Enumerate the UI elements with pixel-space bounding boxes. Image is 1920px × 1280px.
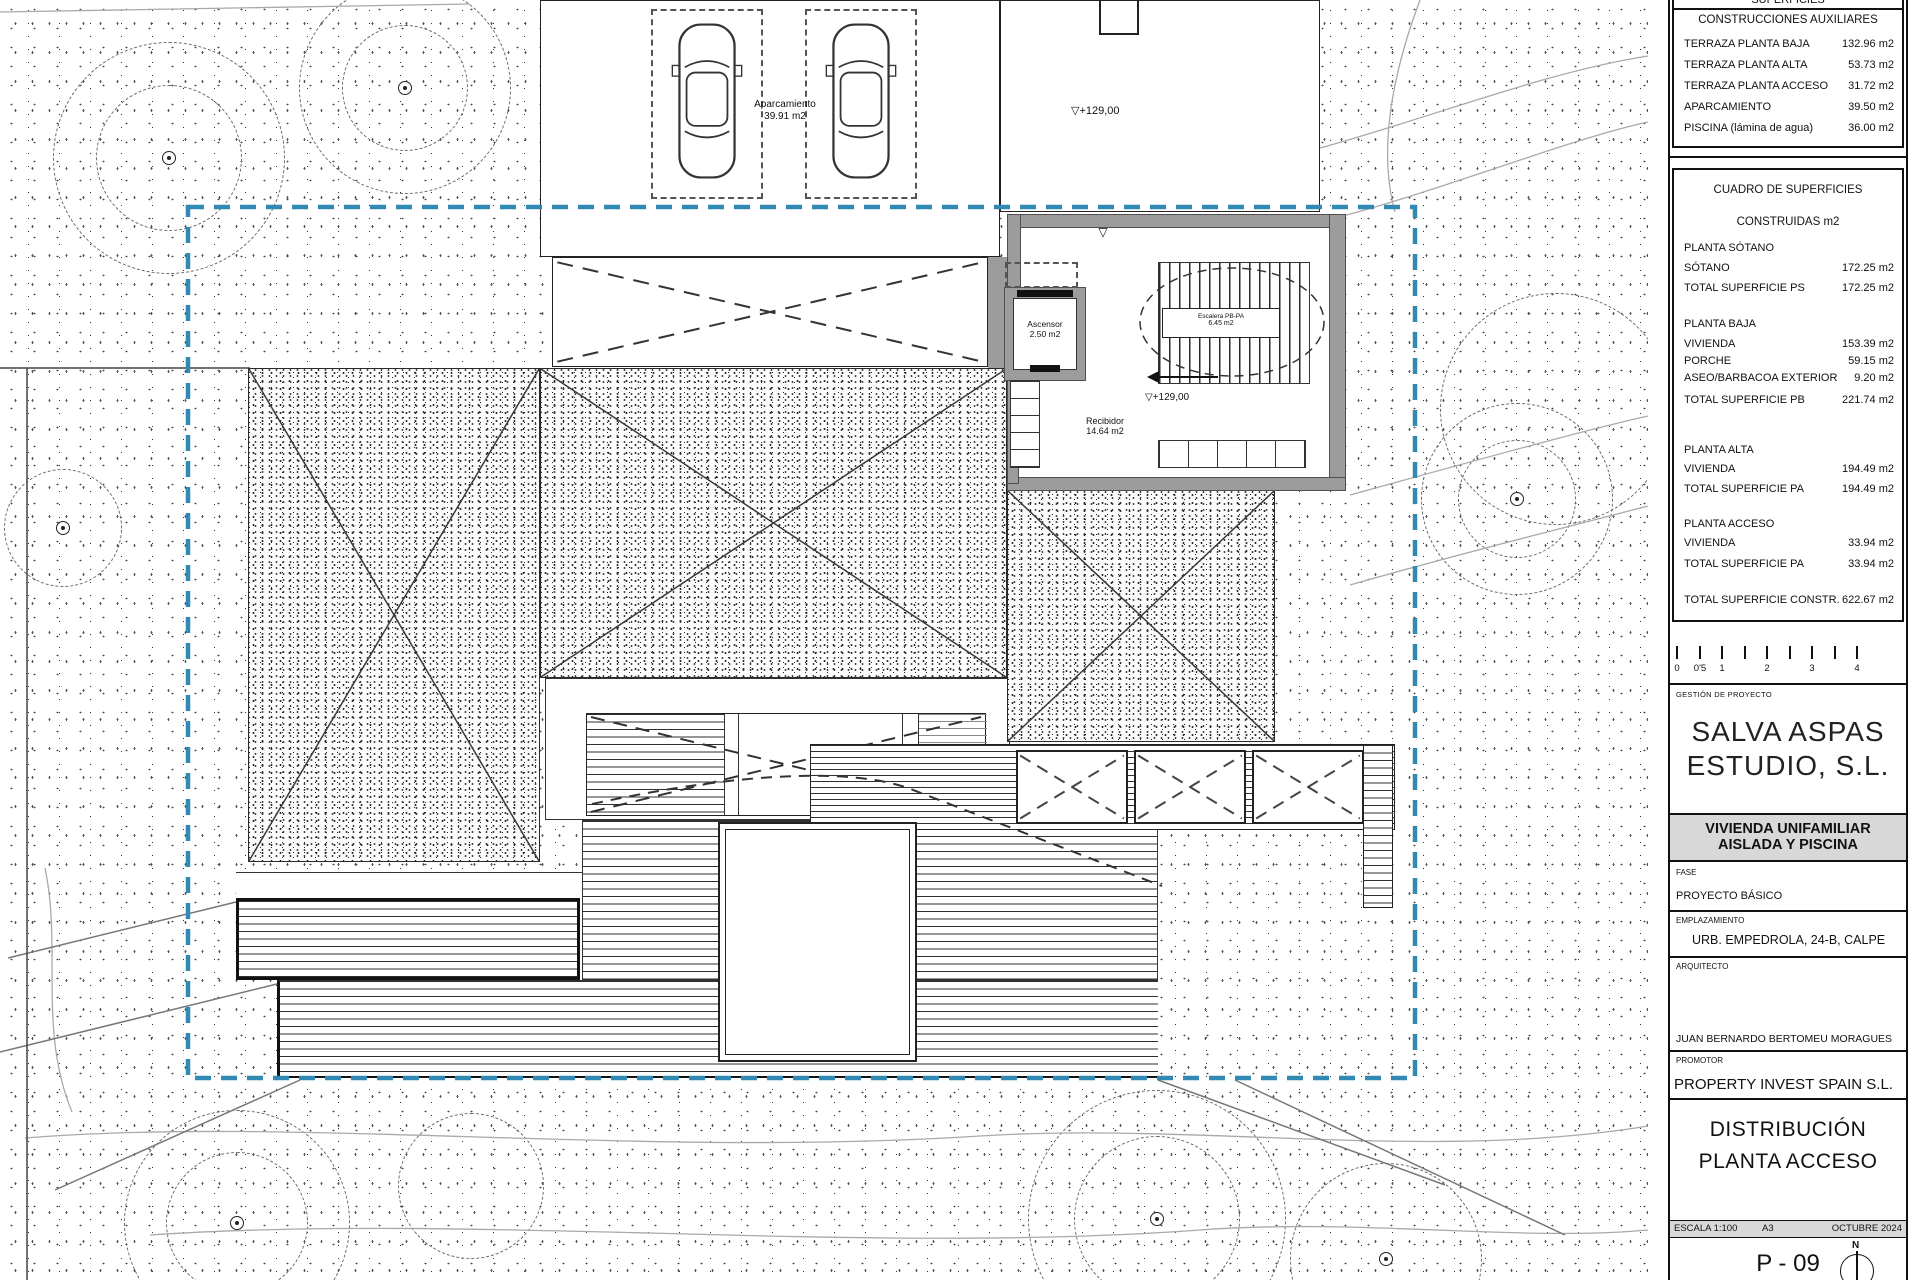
- arquitecto-label: ARQUITECTO: [1676, 962, 1728, 971]
- row-label: VIVIENDA: [1684, 537, 1735, 549]
- exterior-stair: [1363, 744, 1393, 908]
- sheet-title1: DISTRIBUCIÓN: [1672, 1118, 1904, 1142]
- floor-plan-block: Ascensor2.50 m2 Escalera PB-PA 6.45 m2 ▽…: [1005, 210, 1350, 492]
- plan-level-label: ▽+129,00: [1145, 392, 1235, 404]
- gestion-label: GESTIÓN DE PROYECTO: [1676, 690, 1772, 699]
- aux-row-label: TERRAZA PLANTA BAJA: [1684, 38, 1810, 50]
- recibidor-label: Recibidor14.64 m2: [1065, 416, 1145, 437]
- upper-structure: [1099, 0, 1139, 35]
- group-heading: PLANTA ALTA: [1684, 444, 1754, 456]
- fase-label: FASE: [1676, 868, 1696, 877]
- arquitecto-value: JUAN BERNARDO BERTOMEU MORAGUES: [1676, 1033, 1892, 1045]
- group-heading: PLANTA ACCESO: [1684, 518, 1774, 530]
- row-value: 221.74 m2: [1842, 394, 1894, 406]
- row-label: SÓTANO: [1684, 262, 1730, 274]
- row-label: TOTAL SUPERFICIE PA: [1684, 558, 1804, 570]
- skylight: [1134, 750, 1246, 824]
- row-value: 194.49 m2: [1842, 463, 1894, 475]
- aux-row-value: 132.96 m2: [1842, 38, 1894, 50]
- aux-row-value: 31.72 m2: [1848, 80, 1894, 92]
- parking-label: Aparcamiento39.91 m2: [725, 99, 845, 122]
- row-label: TOTAL SUPERFICIE PB: [1684, 394, 1805, 406]
- row-label: TOTAL SUPERFICIE PS: [1684, 282, 1805, 294]
- aux-title: CONSTRUCCIONES AUXILIARES: [1674, 14, 1902, 26]
- scale-label: 3: [1809, 663, 1814, 674]
- promotor-label: PROMOTOR: [1676, 1056, 1723, 1065]
- promotor-value: PROPERTY INVEST SPAIN S.L.: [1674, 1076, 1893, 1093]
- studio-name2: ESTUDIO, S.L.: [1672, 750, 1904, 782]
- title-panel: SUPERFICIES CONSTRUCCIONES AUXILIARES TE…: [1648, 0, 1920, 1280]
- level-label: ▽+129,00: [1071, 105, 1181, 118]
- row-value: 33.94 m2: [1848, 558, 1894, 570]
- scale-label: 1: [1719, 663, 1724, 674]
- roof-region: [540, 368, 1007, 678]
- upper-plot: ▽+129,00: [1000, 0, 1320, 212]
- roof-region: [1007, 490, 1275, 742]
- row-label: TOTAL SUPERFICIE PA: [1684, 483, 1804, 495]
- surfaces-title: CUADRO DE SUPERFICIES: [1674, 184, 1902, 196]
- architectural-sheet: Aparcamiento39.91 m2 ▽+129,00: [0, 0, 1920, 1280]
- project-title2: AISLADA Y PISCINA: [1670, 837, 1906, 853]
- void-band: [552, 257, 988, 367]
- deck-terrace: [236, 898, 580, 980]
- row-value: 33.94 m2: [1848, 537, 1894, 549]
- project-title1: VIVIENDA UNIFAMILIAR: [1670, 821, 1906, 837]
- parking-area: Aparcamiento39.91 m2: [540, 0, 1000, 257]
- aux-row-value: 53.73 m2: [1848, 59, 1894, 71]
- studio-name: SALVA ASPAS: [1672, 716, 1904, 748]
- triangle-mark: ▽: [1093, 226, 1113, 240]
- canopy-dashed: [1005, 262, 1078, 288]
- row-value: 153.39 m2: [1842, 338, 1894, 350]
- north-label: N: [1852, 1240, 1859, 1251]
- aux-header-clipped: SUPERFICIES: [1674, 0, 1902, 7]
- escala-value: ESCALA 1:100: [1674, 1223, 1737, 1234]
- aux-row-label: TERRAZA PLANTA ALTA: [1684, 59, 1807, 71]
- bench: [1158, 440, 1306, 468]
- row-value: 172.25 m2: [1842, 282, 1894, 294]
- formato-value: A3: [1762, 1223, 1774, 1234]
- emplazamiento-value: URB. EMPEDROLA, 24-B, CALPE: [1692, 933, 1885, 947]
- scale-label: 2: [1764, 663, 1769, 674]
- fase-value: PROYECTO BÁSICO: [1676, 890, 1782, 902]
- scale-label: 4: [1854, 663, 1859, 674]
- skylight: [1016, 750, 1128, 824]
- row-label: ASEO/BARBACOA EXTERIOR: [1684, 372, 1837, 384]
- group-heading: PLANTA BAJA: [1684, 318, 1756, 330]
- row-value: 59.15 m2: [1848, 355, 1894, 367]
- surfaces-subtitle: CONSTRUIDAS m2: [1674, 216, 1902, 228]
- north-compass-icon: [1840, 1254, 1874, 1280]
- total-label: TOTAL SUPERFICIE CONSTR.: [1684, 594, 1840, 606]
- roof-region: [248, 368, 540, 862]
- total-value: 622.67 m2: [1842, 594, 1894, 606]
- row-value: 9.20 m2: [1854, 372, 1894, 384]
- skylight: [1252, 750, 1364, 824]
- row-value: 172.25 m2: [1842, 262, 1894, 274]
- row-value: 194.49 m2: [1842, 483, 1894, 495]
- white-strip: [236, 872, 582, 899]
- surfaces-table: CUADRO DE SUPERFICIES CONSTRUIDAS m2 PLA…: [1672, 168, 1904, 622]
- pool-inner: [725, 829, 910, 1055]
- closet: [1010, 380, 1040, 468]
- emplazamiento-label: EMPLAZAMIENTO: [1676, 916, 1744, 925]
- aux-row-label: APARCAMIENTO: [1684, 101, 1771, 113]
- aux-row-value: 36.00 m2: [1848, 122, 1894, 134]
- fecha-value: OCTUBRE 2024: [1832, 1223, 1902, 1234]
- row-label: VIVIENDA: [1684, 338, 1735, 350]
- project-band: VIVIENDA UNIFAMILIAR AISLADA Y PISCINA: [1670, 813, 1906, 862]
- scale-label: 0: [1674, 663, 1679, 674]
- sheet-title2: PLANTA ACCESO: [1672, 1150, 1904, 1174]
- aux-row-label: PISCINA (lámina de agua): [1684, 122, 1813, 134]
- aux-row-value: 39.50 m2: [1848, 101, 1894, 113]
- pool: [718, 822, 917, 1062]
- scale-band: ESCALA 1:100 A3 OCTUBRE 2024: [1670, 1220, 1906, 1238]
- aux-table: SUPERFICIES CONSTRUCCIONES AUXILIARES TE…: [1672, 0, 1904, 148]
- row-label: PORCHE: [1684, 355, 1731, 367]
- group-heading: PLANTA SÓTANO: [1684, 242, 1774, 254]
- scale-label: 0'5: [1694, 663, 1706, 674]
- aux-row-label: TERRAZA PLANTA ACCESO: [1684, 80, 1828, 92]
- row-label: VIVIENDA: [1684, 463, 1735, 475]
